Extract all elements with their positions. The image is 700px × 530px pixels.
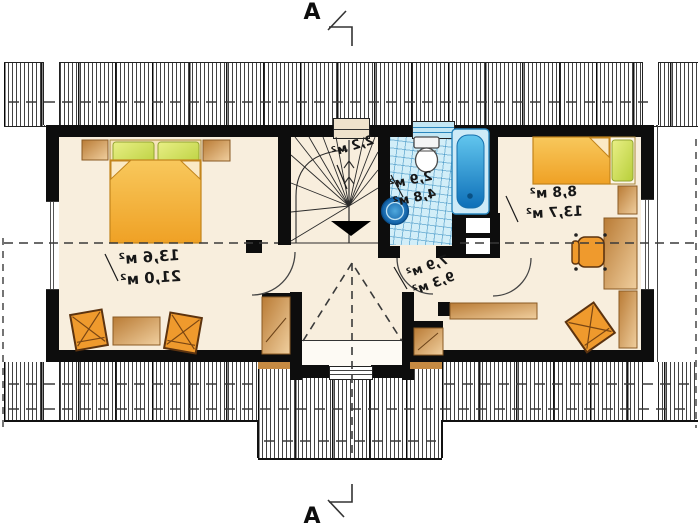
bathtub <box>452 129 489 214</box>
armchair-left <box>70 309 108 350</box>
door-arc-bedroom-left <box>252 252 295 295</box>
office-chair <box>572 233 607 271</box>
attic-floor-plan: A A 13,6 м² 21,0 м² 2,2 м² 2,9 м² 4,8 м²… <box>0 0 700 530</box>
label-bedroom-right: 8,8 м² 13,7 м² <box>515 182 593 225</box>
single-bed <box>533 137 635 184</box>
double-bed <box>110 140 201 243</box>
sideboard-hall <box>438 302 537 319</box>
door-arcs <box>252 252 531 296</box>
armchair-right-room <box>566 303 615 353</box>
desk <box>604 218 637 289</box>
coffee-table <box>113 317 160 345</box>
nightstand-right <box>618 186 637 214</box>
stair-direction-arrow <box>331 221 371 236</box>
section-mark-bottom <box>328 484 352 517</box>
section-mark-top <box>328 11 352 46</box>
bedroom-right-floor-area: 13,7 м² <box>516 202 593 226</box>
armchair-right <box>164 312 202 353</box>
label-bedroom-left: 13,6 м² 21,0 м² <box>97 243 204 292</box>
section-label-bottom: A <box>299 504 325 529</box>
wardrobe-dormer-right <box>414 321 443 355</box>
door-arc-bedroom-right <box>493 258 531 296</box>
shelf-right-room <box>619 291 637 348</box>
dormer-ridge-lines <box>303 263 402 341</box>
wardrobe-dormer-left <box>262 293 290 354</box>
section-label-top: A <box>299 0 325 25</box>
